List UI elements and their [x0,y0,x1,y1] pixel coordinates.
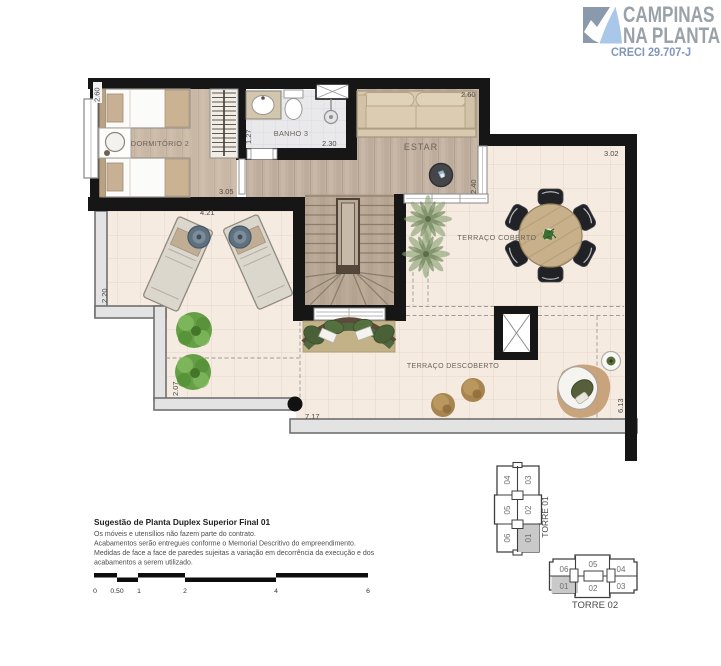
svg-text:04: 04 [503,475,512,484]
svg-text:2.60: 2.60 [93,87,102,102]
svg-text:2: 2 [183,588,187,595]
svg-text:BANHO 3: BANHO 3 [274,129,309,138]
svg-text:02: 02 [589,584,598,593]
svg-text:TORRE 01: TORRE 01 [540,496,550,538]
svg-text:01: 01 [560,582,569,591]
svg-text:1: 1 [137,588,141,595]
svg-text:4.21: 4.21 [200,208,215,217]
svg-text:03: 03 [524,475,533,484]
svg-text:2.40: 2.40 [469,179,478,194]
svg-text:2.60: 2.60 [461,90,476,99]
svg-text:Sugestão de Planta Duplex Supe: Sugestão de Planta Duplex Superior Final… [94,517,271,527]
svg-text:2.07: 2.07 [171,381,180,396]
svg-text:CRECI 29.707-J: CRECI 29.707-J [611,47,691,59]
svg-text:TERRAÇO DESCOBERTO: TERRAÇO DESCOBERTO [407,362,499,370]
svg-text:7.17: 7.17 [305,412,320,421]
svg-text:TORRE 02: TORRE 02 [572,600,618,611]
svg-text:0.50: 0.50 [110,588,123,595]
svg-text:01: 01 [524,533,533,542]
svg-text:05: 05 [503,505,512,514]
svg-text:Acabamentos serão entregues co: Acabamentos serão entregues conforme o M… [94,541,356,548]
svg-text:05: 05 [589,560,598,569]
svg-text:TERRAÇO COBERTO: TERRAÇO COBERTO [457,233,536,242]
svg-text:06: 06 [560,565,569,574]
svg-text:6: 6 [366,588,370,595]
svg-text:3.05: 3.05 [219,187,234,196]
svg-text:NA PLANTA: NA PLANTA [623,24,720,49]
svg-text:02: 02 [524,505,533,514]
svg-text:acabamentos a serem utilizado.: acabamentos a serem utilizado. [94,560,193,567]
svg-text:04: 04 [617,565,626,574]
svg-text:3.02: 3.02 [604,149,619,158]
svg-text:06: 06 [503,533,512,542]
svg-text:1.27: 1.27 [244,129,253,144]
svg-text:Medidas de face a face de pare: Medidas de face a face de paredes sujeit… [94,550,375,557]
svg-text:03: 03 [617,582,626,591]
svg-text:0: 0 [93,588,97,595]
svg-text:ESTAR: ESTAR [404,142,438,152]
svg-text:4: 4 [274,588,278,595]
svg-text:Os móveis e utensílios não faz: Os móveis e utensílios não fazem parte d… [94,531,256,538]
svg-text:6.13: 6.13 [616,398,625,413]
svg-text:DORMITÓRIO 2: DORMITÓRIO 2 [131,139,189,148]
svg-text:2.20: 2.20 [100,288,109,303]
svg-text:2.30: 2.30 [322,139,337,148]
